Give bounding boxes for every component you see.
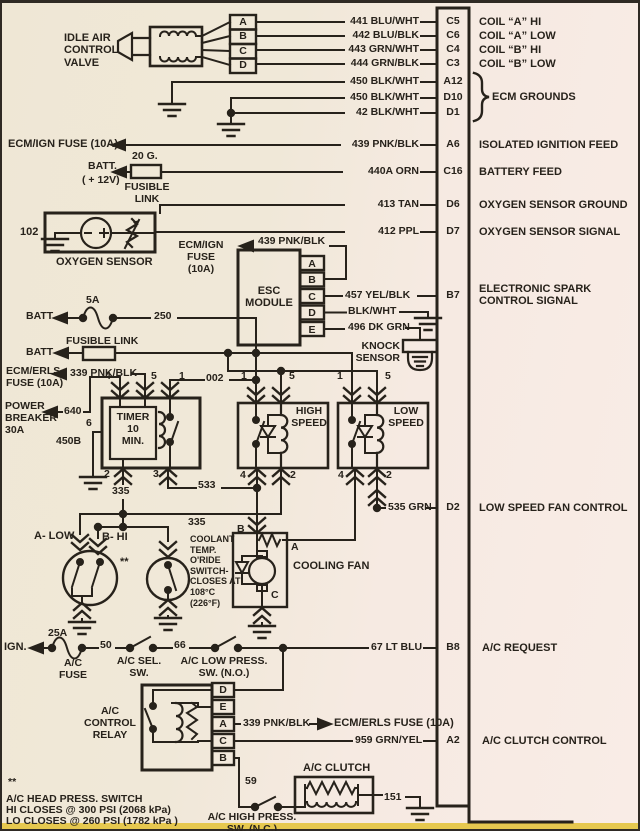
desc-coil-a-hi: COIL “A” HI <box>479 16 541 28</box>
desc-coil-a-low: COIL “A” LOW <box>479 30 556 42</box>
fan-pin-b: B <box>237 524 245 536</box>
ls-pin-1: 1 <box>337 371 343 383</box>
wire-50: 50 <box>100 640 112 652</box>
desc-ecm-grounds: ECM GROUNDS <box>492 91 576 103</box>
ecm-pin-c16: C16 <box>438 166 468 178</box>
wire-439-esc: 439 PNK/BLK <box>258 236 325 248</box>
fusible-link2-label: FUSIBLE LINK <box>66 336 138 348</box>
wire-442: 442 BLU/BLK <box>323 30 419 42</box>
iac-pin-a: A <box>230 17 256 29</box>
knock-sensor-label: KNOCK SENSOR <box>348 341 400 365</box>
wire-444: 444 GRN/BLK <box>323 58 419 70</box>
desc-ac-clutch: A/C CLUTCH CONTROL <box>482 735 607 747</box>
ls-pin-5: 5 <box>385 371 391 383</box>
plus12v-label: ( + 12V) <box>82 175 120 187</box>
ac-relay-label: A/C CONTROL RELAY <box>82 706 138 741</box>
batt-label: BATT. <box>88 161 117 173</box>
b-hi-label: B- HI <box>102 531 128 543</box>
ecm-pin-c5: C5 <box>438 16 468 28</box>
ecm-ign-fuse-label: ECM/IGN FUSE (10A) <box>8 138 118 150</box>
ecm-pin-b7: B7 <box>438 290 468 302</box>
desc-esc-signal: ELECTRONIC SPARK CONTROL SIGNAL <box>479 283 591 308</box>
wire-339: 339 PNK/BLK <box>70 368 137 380</box>
desc-isolated-ignition: ISOLATED IGNITION FEED <box>479 139 618 151</box>
batt2-label: BATT <box>26 311 53 323</box>
fusible-link-label: FUSIBLE LINK <box>124 182 170 206</box>
wire-457: 457 YEL/BLK <box>345 290 410 302</box>
esc-pin-c: C <box>300 292 324 304</box>
wire-blkwht: BLK/WHT <box>348 306 396 318</box>
iac-pin-c: C <box>230 46 256 58</box>
timer-pin-4: 4 <box>105 371 111 383</box>
footnote-line3: LO CLOSES @ 260 PSI (1782 kPa ) <box>6 816 178 828</box>
timer-pin-3: 3 <box>153 469 159 481</box>
wire-959: 959 GRN/YEL <box>355 735 422 747</box>
wire-535: 535 GRN <box>388 502 432 514</box>
ecm-pin-a12: A12 <box>438 76 468 88</box>
o2-circuit-102: 102 <box>20 226 38 238</box>
wire-443: 443 GRN/WHT <box>323 44 419 56</box>
batt3-label: BATT <box>26 347 53 359</box>
ecm-pin-d2: D2 <box>438 502 468 514</box>
fuse-25a-label: 25A <box>48 628 67 640</box>
desc-o2-signal: OXYGEN SENSOR SIGNAL <box>479 226 620 238</box>
wire-441: 441 BLU/WHT <box>323 16 419 28</box>
timer-pin-1: 1 <box>179 371 185 383</box>
ecm-pin-a6: A6 <box>438 139 468 151</box>
oxygen-sensor-label: OXYGEN SENSOR <box>56 256 153 268</box>
ecm-pin-d10: D10 <box>438 92 468 104</box>
fan-pin-a: A <box>291 542 299 554</box>
wire-250: 250 <box>154 311 172 323</box>
low-speed-label: LOW SPEED <box>385 406 427 430</box>
ac-fuse-label: A/C FUSE <box>50 658 96 682</box>
relay-pin-c: C <box>212 736 234 748</box>
desc-battery-feed: BATTERY FEED <box>479 166 562 178</box>
fan-pin-c: C <box>271 590 279 602</box>
esc-pin-e: E <box>300 325 324 337</box>
desc-coil-b-hi: COIL “B” HI <box>479 44 541 56</box>
wire-439: 439 PNK/BLK <box>323 139 419 151</box>
ecm-pin-d1: D1 <box>438 107 468 119</box>
esc-fuse-label: ECM/IGN FUSE (10A) <box>164 240 238 275</box>
iac-pin-b: B <box>230 31 256 43</box>
wire-151: 151 <box>384 792 402 804</box>
ecm-pin-c6: C6 <box>438 30 468 42</box>
coolant-override-label: COOLANT TEMP. O'RIDE SWITCH- CLOSES AT 1… <box>190 534 241 608</box>
wire-59: 59 <box>245 776 257 788</box>
ls-pin-2: 2 <box>386 470 392 482</box>
ac-high-press-label: A/C HIGH PRESS. SW. (N.C.) <box>202 812 302 831</box>
wire-413: 413 TAN <box>323 199 419 211</box>
ecm-pin-a2: A2 <box>438 735 468 747</box>
desc-low-fan: LOW SPEED FAN CONTROL <box>479 502 628 514</box>
relay-pin-a: A <box>212 719 234 731</box>
hs-pin-2: 2 <box>290 470 296 482</box>
to-ecm-erls-fuse: ECM/ERLS FUSE (10A) <box>334 717 454 729</box>
gauge-20g-label: 20 G. <box>132 151 158 163</box>
wire-335a: 335 <box>112 486 130 498</box>
ls-pin-4: 4 <box>338 470 344 482</box>
ecm-pin-c4: C4 <box>438 44 468 56</box>
ac-low-press-label: A/C LOW PRESS. SW. (N.O.) <box>178 656 270 680</box>
wiring-diagram-page: IDLE AIR CONTROL VALVE A B C D 441 BLU/W… <box>0 0 640 831</box>
relay-pin-b: B <box>212 753 234 765</box>
ac-sel-sw-label: A/C SEL. SW. <box>112 656 166 680</box>
fuse-5a-label: 5A <box>86 295 99 307</box>
ecm-pin-d6: D6 <box>438 199 468 211</box>
timer-pin-5: 5 <box>151 371 157 383</box>
ecm-pin-d7: D7 <box>438 226 468 238</box>
stars-ref: ** <box>120 556 129 568</box>
iac-valve-label: IDLE AIR CONTROL VALVE <box>64 32 118 69</box>
wire-640: 640 <box>64 406 82 418</box>
esc-pin-b: B <box>300 275 324 287</box>
hs-pin-1: 1 <box>241 371 247 383</box>
wire-496: 496 DK GRN <box>348 322 410 334</box>
wire-533: 533 <box>198 480 216 492</box>
wire-450b-label: 450B <box>56 436 81 448</box>
ac-clutch-label: A/C CLUTCH <box>303 762 370 774</box>
ecm-pin-c3: C3 <box>438 58 468 70</box>
a-low-label: A- LOW <box>34 530 74 542</box>
desc-o2-ground: OXYGEN SENSOR GROUND <box>479 199 628 211</box>
desc-ac-request: A/C REQUEST <box>482 642 557 654</box>
wire-440a: 440A ORN <box>323 166 419 178</box>
cooling-fan-label: COOLING FAN <box>293 560 369 572</box>
wire-002: 002 <box>206 373 224 385</box>
esc-pin-a: A <box>300 259 324 271</box>
wire-66: 66 <box>174 640 186 652</box>
wire-42: 42 BLK/WHT <box>323 107 419 119</box>
timer-pin-6: 6 <box>86 418 92 430</box>
wire-450b: 450 BLK/WHT <box>323 92 419 104</box>
esc-module-label: ESC MODULE <box>239 285 299 310</box>
footnote-stars: ** <box>8 777 16 789</box>
ecm-pin-b8: B8 <box>438 642 468 654</box>
ecm-erls-fuse-label: ECM/ERLS FUSE (10A) <box>6 366 63 390</box>
relay-pin-e: E <box>212 702 234 714</box>
wire-67: 67 LT BLU <box>371 642 422 654</box>
hs-pin-4: 4 <box>240 470 246 482</box>
esc-pin-d: D <box>300 308 324 320</box>
relay-pin-d: D <box>212 685 234 697</box>
power-breaker-label: POWER BREAKER 30A <box>5 401 57 436</box>
timer-pin-2: 2 <box>104 469 110 481</box>
desc-coil-b-low: COIL “B” LOW <box>479 58 556 70</box>
wire-339b: 339 PNK/BLK <box>243 718 310 730</box>
timer-label: TIMER 10 MIN. <box>109 412 157 447</box>
ign-label: IGN. <box>4 641 27 653</box>
wire-412: 412 PPL <box>323 226 419 238</box>
wire-335b: 335 <box>188 517 206 529</box>
wire-450a: 450 BLK/WHT <box>323 76 419 88</box>
hs-pin-5: 5 <box>289 371 295 383</box>
iac-pin-d: D <box>230 60 256 72</box>
high-speed-label: HIGH SPEED <box>288 406 330 430</box>
